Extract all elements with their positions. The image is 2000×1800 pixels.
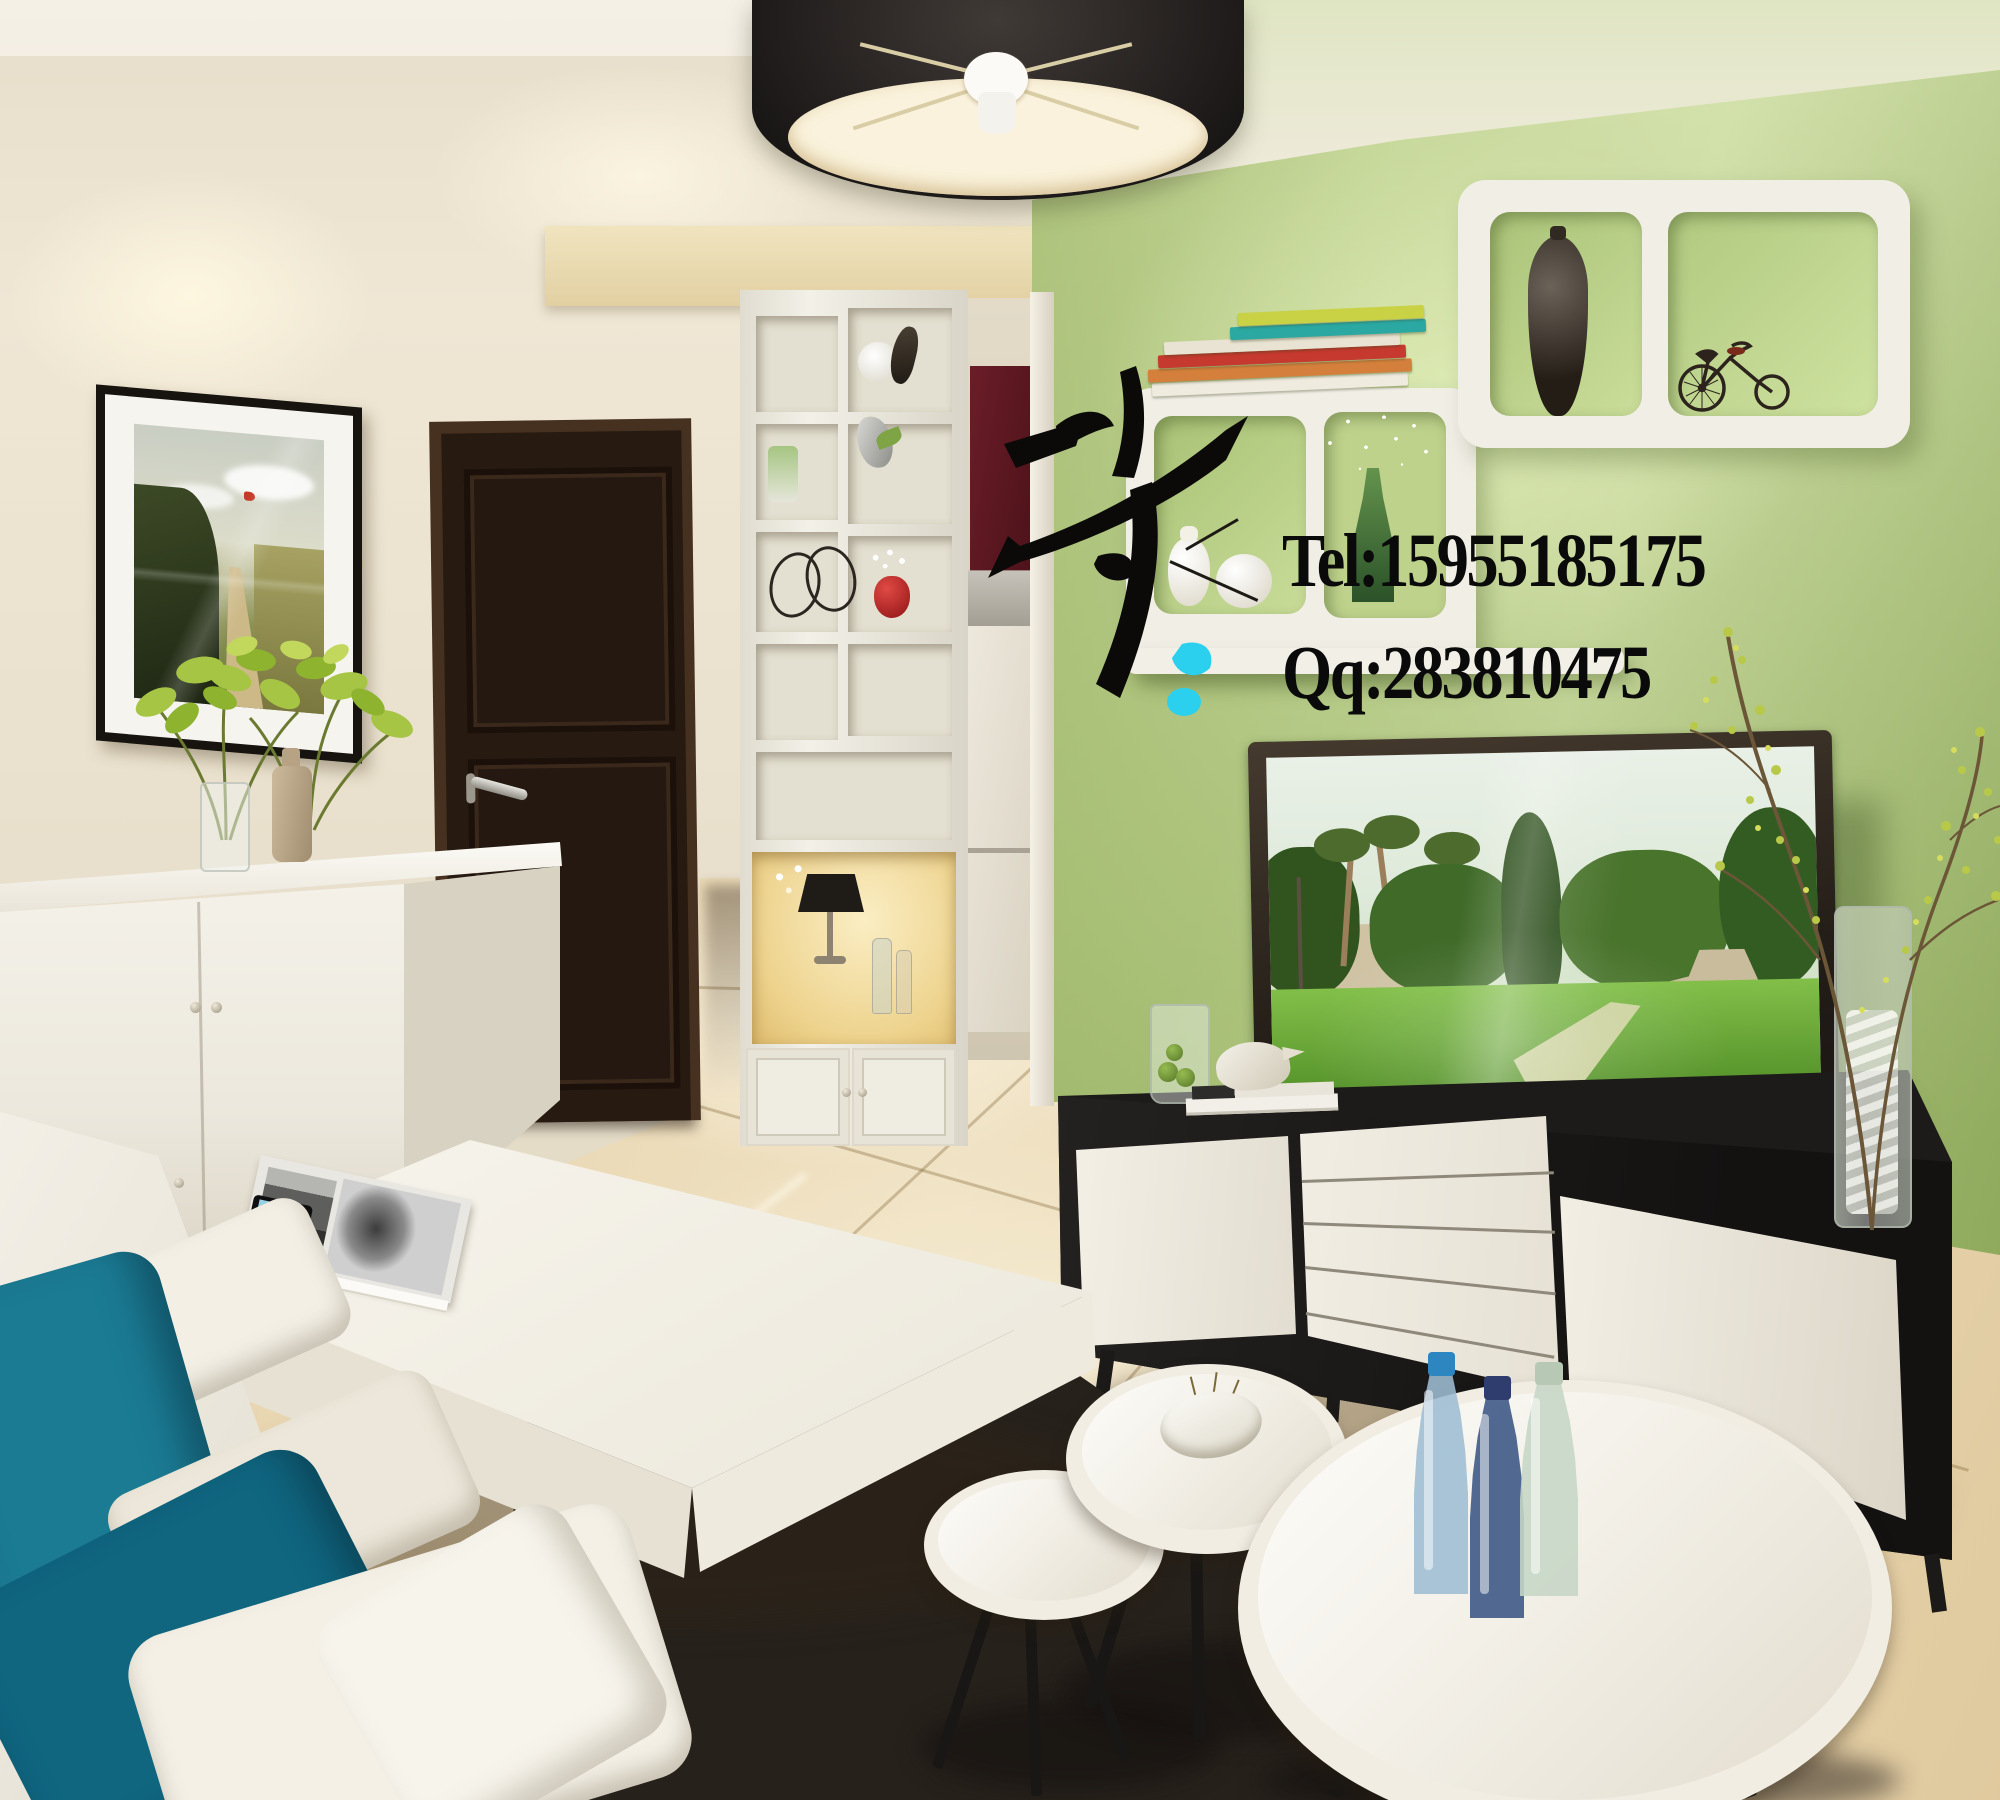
niche-table-lamp (798, 874, 864, 912)
watermark-tel: Tel:15955185175 (1282, 518, 1704, 605)
bicycle-ornament (1672, 322, 1802, 416)
ceramic-vase (272, 766, 312, 862)
shelf-cubby (756, 752, 952, 840)
shelf-base-door (746, 1048, 850, 1146)
cyan-drops (1167, 642, 1211, 716)
decor-sprout-vase (768, 446, 798, 502)
living-room-render: Tel:15955185175 Qq:283810475 (0, 0, 2000, 1800)
bottle-highlight (1480, 1414, 1489, 1594)
shelf-cubby (756, 316, 838, 412)
shelf-cubby (756, 644, 838, 740)
bottle-highlight (1424, 1390, 1433, 1570)
cabinet-knob (211, 1002, 222, 1013)
cabinet-knob (174, 1178, 184, 1188)
shelf-base-door (852, 1048, 956, 1146)
green-fruit (1166, 1044, 1183, 1061)
bottle-cap (1428, 1352, 1455, 1376)
shelf-cubby (848, 644, 952, 736)
door-knob (842, 1088, 851, 1097)
bottle-highlight (1531, 1398, 1540, 1574)
green-fruit (1158, 1062, 1178, 1082)
glass-vase (200, 782, 250, 872)
niche-lamp-base (814, 956, 846, 964)
niche-bottle (872, 938, 892, 1014)
cabinet-knob (190, 1002, 201, 1013)
vase-neck (1550, 226, 1566, 240)
door-knob (858, 1088, 867, 1097)
door-inset-panel (464, 466, 676, 733)
cherries (1176, 1398, 1246, 1440)
stand-left-door (1076, 1136, 1298, 1348)
ceiling-lamp (752, 0, 1244, 212)
bottle-cap (1535, 1362, 1563, 1385)
red-vase (874, 576, 910, 618)
watermark-qq: Qq:283810475 (1282, 630, 1650, 717)
lamp-socket (978, 92, 1016, 134)
branch-plant (1610, 540, 2000, 1240)
babys-breath-flowers (1318, 400, 1438, 486)
green-fruit (1176, 1068, 1195, 1087)
calligraphy-logo (986, 364, 1260, 720)
bottle-cap (1484, 1376, 1511, 1400)
niche-lamp-stem (827, 912, 833, 958)
white-flowers (866, 544, 914, 578)
niche-bottle (896, 950, 912, 1014)
